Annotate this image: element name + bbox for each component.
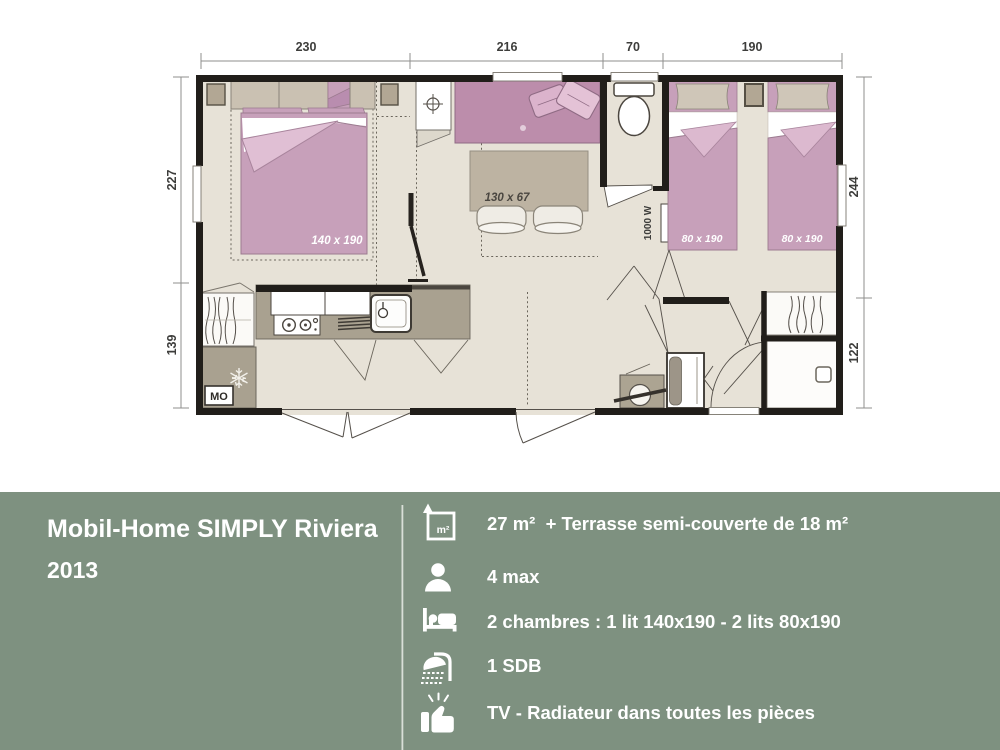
svg-text:1000 W: 1000 W	[643, 205, 654, 240]
svg-text:27 m² + Terrasse semi-couvert: 27 m² + Terrasse semi-couverte de 18 m²	[487, 513, 848, 534]
svg-text:80 x 190: 80 x 190	[782, 233, 823, 245]
svg-text:139: 139	[165, 335, 179, 356]
svg-text:190: 190	[742, 40, 763, 54]
svg-text:m²: m²	[437, 524, 450, 536]
svg-text:130 x 67: 130 x 67	[485, 192, 530, 204]
svg-text:4 max: 4 max	[487, 566, 540, 587]
svg-text:Mobil-Home SIMPLY Riviera: Mobil-Home SIMPLY Riviera	[47, 515, 379, 543]
svg-text:2013: 2013	[47, 557, 98, 583]
svg-text:244: 244	[847, 177, 861, 198]
svg-text:227: 227	[165, 170, 179, 191]
svg-text:MO: MO	[210, 391, 228, 403]
svg-text:80 x 190: 80 x 190	[682, 233, 723, 245]
svg-text:1 SDB: 1 SDB	[487, 655, 542, 676]
svg-text:TV - Radiateur dans toutes les: TV - Radiateur dans toutes les pièces	[487, 702, 815, 723]
svg-text:140 x 190: 140 x 190	[311, 235, 363, 247]
svg-text:230: 230	[296, 40, 317, 54]
svg-text:70: 70	[626, 40, 640, 54]
svg-text:216: 216	[497, 40, 518, 54]
svg-text:122: 122	[847, 343, 861, 364]
svg-text:2 chambres : 1 lit 140x190 - 2: 2 chambres : 1 lit 140x190 - 2 lits 80x1…	[487, 611, 841, 632]
